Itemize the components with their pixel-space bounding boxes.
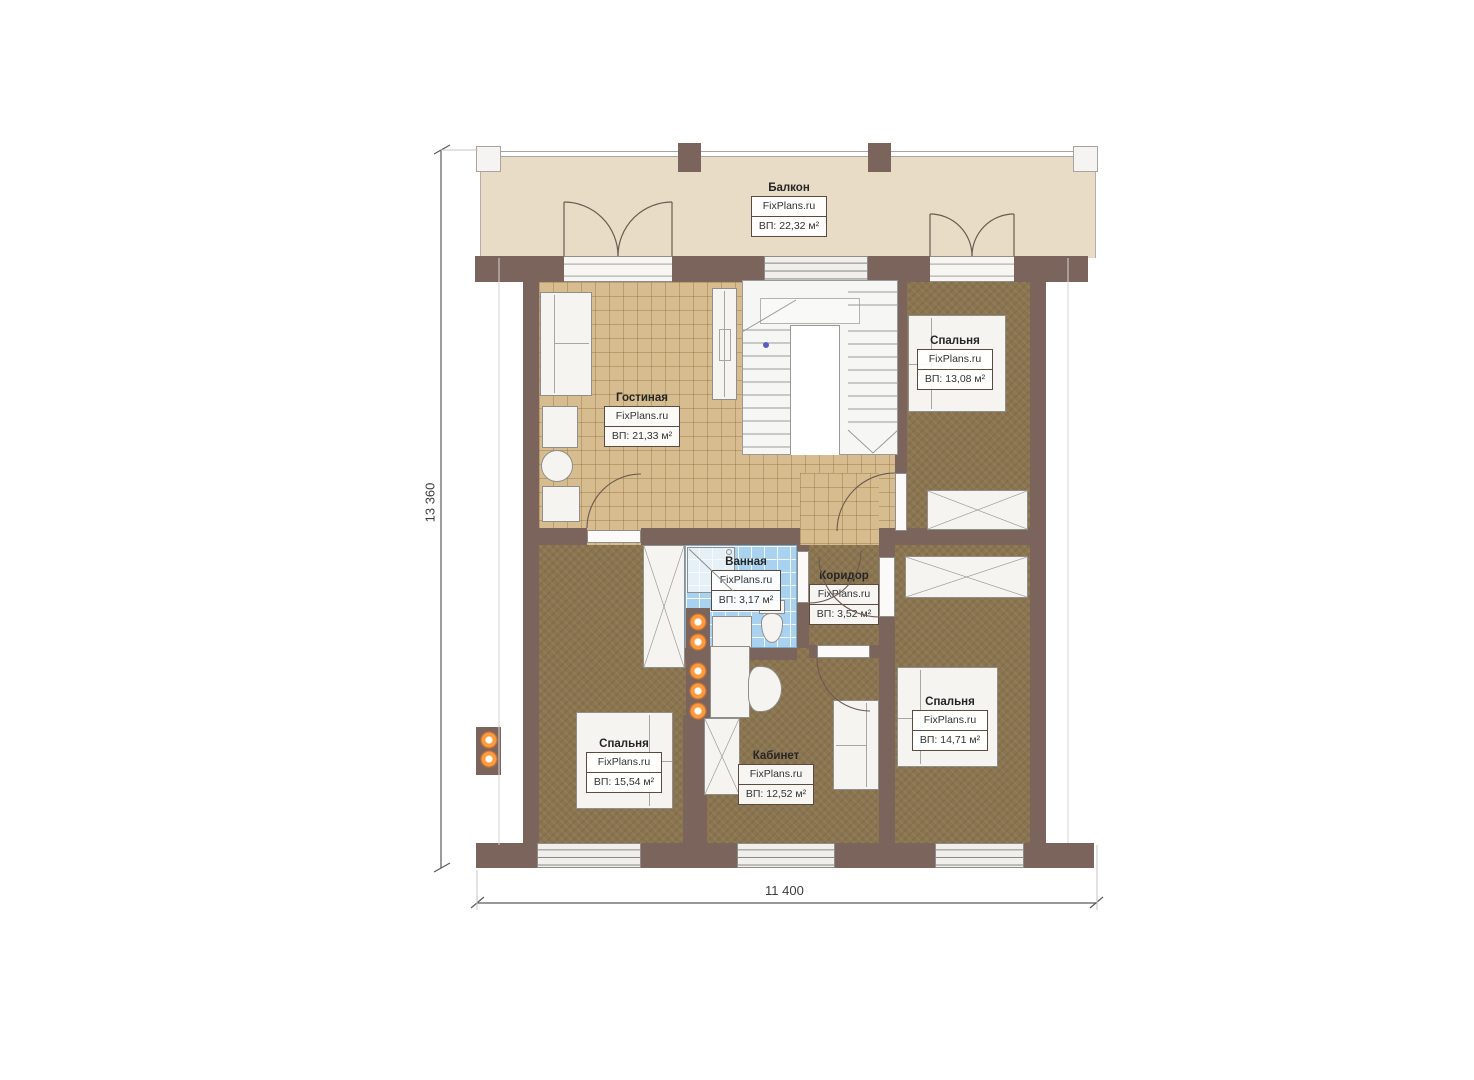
room-info-box: FixPlans.ru ВП: 13,08 м² — [917, 349, 993, 390]
wardrobe — [905, 556, 1028, 598]
interior-wall-middle — [539, 528, 587, 545]
room-title: Ванная — [725, 556, 767, 568]
exterior-wall-bottom — [1024, 843, 1094, 868]
bedroom-left-door-leaf — [587, 530, 641, 543]
study-door-leaf — [817, 645, 870, 658]
balcony-corner-post-right — [1073, 146, 1098, 172]
room-info-box: FixPlans.ru ВП: 22,32 м² — [751, 196, 827, 237]
room-info-box: FixPlans.ru ВП: 21,33 м² — [604, 406, 680, 447]
balcony-mullion — [868, 143, 891, 172]
room-title: Балкон — [768, 182, 810, 194]
room-info-box: FixPlans.ru ВП: 12,52 м² — [738, 764, 814, 805]
side-table — [542, 406, 578, 448]
dimension-height: 13 360 — [422, 483, 437, 523]
round-table — [541, 450, 573, 482]
brand-row: FixPlans.ru — [587, 753, 661, 772]
exterior-wall-right — [1030, 282, 1046, 843]
room-title: Гостиная — [616, 392, 668, 404]
dimension-width: 11 400 — [765, 883, 804, 898]
room-label-bathroom: Ванная FixPlans.ru ВП: 3,17 м² — [698, 556, 794, 611]
bathroom-wall-top — [688, 528, 800, 545]
window-bottom — [737, 843, 835, 868]
stairwell-void — [790, 325, 840, 455]
exterior-wall-top — [1014, 256, 1088, 282]
area-row: ВП: 14,71 м² — [913, 730, 987, 750]
room-title: Спальня — [925, 696, 975, 708]
room-title: Спальня — [599, 738, 649, 750]
exterior-wall-bottom — [835, 843, 935, 868]
brand-row: FixPlans.ru — [605, 407, 679, 426]
armchair — [542, 486, 580, 522]
exterior-wall-left — [523, 282, 539, 843]
area-row: ВП: 3,52 м² — [810, 604, 878, 624]
brand-row: FixPlans.ru — [739, 765, 813, 784]
room-title: Спальня — [930, 335, 980, 347]
room-label-study: Кабинет FixPlans.ru ВП: 12,52 м² — [726, 750, 826, 805]
area-row: ВП: 13,08 м² — [918, 369, 992, 389]
wardrobe — [927, 490, 1028, 530]
room-info-box: FixPlans.ru ВП: 14,71 м² — [912, 710, 988, 751]
wall-light — [689, 702, 707, 720]
bathroom-vanity — [712, 616, 752, 648]
room-title: Кабинет — [753, 750, 800, 762]
brand-row: FixPlans.ru — [918, 350, 992, 369]
bedroom-top-wall-bottom — [907, 528, 1030, 545]
area-row: ВП: 15,54 м² — [587, 772, 661, 792]
window-top — [764, 256, 868, 282]
room-info-box: FixPlans.ru ВП: 15,54 м² — [586, 752, 662, 793]
room-label-balcony: Балкон FixPlans.ru ВП: 22,32 м² — [737, 182, 841, 237]
wall-light — [689, 662, 707, 680]
room-info-box: FixPlans.ru ВП: 3,52 м² — [809, 584, 879, 625]
room-title: Коридор — [819, 570, 869, 582]
room-label-bedroom-left: Спальня FixPlans.ru ВП: 15,54 м² — [574, 738, 674, 793]
area-row: ВП: 12,52 м² — [739, 784, 813, 804]
interior-wall-middle — [641, 528, 688, 545]
wall-light — [480, 731, 498, 749]
area-row: ВП: 22,32 м² — [752, 216, 826, 236]
balcony-door-opening-right — [930, 256, 1014, 282]
exterior-wall-top — [475, 256, 564, 282]
brand-row: FixPlans.ru — [752, 197, 826, 216]
study-wall-right — [879, 645, 895, 843]
room-info-box: FixPlans.ru ВП: 3,17 м² — [711, 570, 781, 611]
room-label-living: Гостиная FixPlans.ru ВП: 21,33 м² — [590, 392, 694, 447]
balcony-door-opening-left — [564, 256, 672, 282]
room-label-bedroom-top: Спальня FixPlans.ru ВП: 13,08 м² — [905, 335, 1005, 390]
wardrobe — [643, 545, 685, 668]
balcony-glazing — [478, 151, 1098, 157]
brand-row: FixPlans.ru — [913, 711, 987, 730]
balcony-corner-post-left — [476, 146, 501, 172]
exterior-wall-top — [672, 256, 764, 282]
wall-light — [689, 633, 707, 651]
sofa — [540, 292, 592, 396]
brand-row: FixPlans.ru — [712, 571, 780, 590]
exterior-wall-top — [868, 256, 930, 282]
cabinet — [712, 288, 737, 400]
wall-light — [689, 613, 707, 631]
floor-plan: Балкон FixPlans.ru ВП: 22,32 м² Гостиная… — [0, 0, 1474, 1080]
stairwell-landing — [760, 298, 860, 324]
wall-light — [480, 750, 498, 768]
brand-row: FixPlans.ru — [810, 585, 878, 604]
window-bottom — [935, 843, 1024, 868]
exterior-wall-bottom — [641, 843, 737, 868]
area-row: ВП: 3,17 м² — [712, 590, 780, 610]
couch — [833, 700, 879, 790]
exterior-wall-bottom — [476, 843, 537, 868]
desk — [710, 646, 750, 718]
bedroom-top-door-leaf — [895, 473, 907, 531]
area-row: ВП: 21,33 м² — [605, 426, 679, 446]
room-label-corridor: Коридор FixPlans.ru ВП: 3,52 м² — [799, 570, 889, 625]
window-bottom — [537, 843, 641, 868]
balcony-mullion — [678, 143, 701, 172]
wall-light — [689, 682, 707, 700]
room-label-bedroom-right: Спальня FixPlans.ru ВП: 14,71 м² — [900, 696, 1000, 751]
